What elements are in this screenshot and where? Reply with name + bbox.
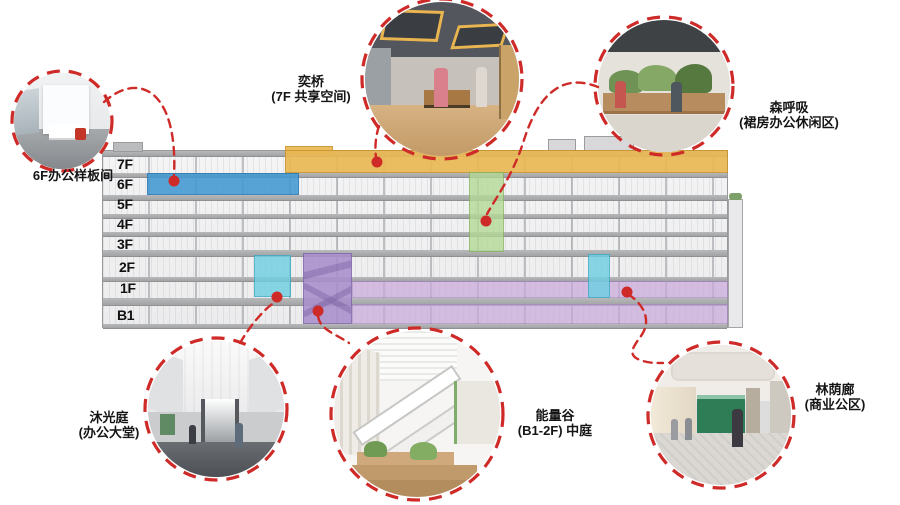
callout-photo-office-showroom	[14, 73, 110, 169]
slab-6f	[103, 195, 727, 201]
arcade-floor	[651, 433, 791, 485]
slab-5f	[103, 214, 727, 219]
callout-label-arcade-line1: 林荫廊	[770, 382, 900, 397]
zone-podium-leisure-highlight	[469, 172, 504, 252]
callout-photo-forest	[598, 20, 730, 152]
roof-parapet	[113, 142, 143, 152]
callout-label-forest-line2: (裙房办公休闲区)	[724, 115, 854, 130]
callout-label-energy: 能量谷 (B1-2F) 中庭	[490, 408, 620, 438]
zone-retail-entry-highlight	[588, 254, 610, 298]
floor-label-3f: 3F	[117, 236, 149, 252]
callout-label-lobby-line2: (办公大堂)	[44, 425, 174, 440]
callout-label-lobby-line1: 沐光庭	[44, 410, 174, 425]
forest-person-left	[615, 81, 626, 109]
escalator-stripe	[303, 259, 352, 281]
yiqiao-person-pink	[434, 68, 448, 107]
callout-label-yiqiao-line2: (7F 共享空间)	[246, 89, 376, 104]
floor-label-4f: 4F	[117, 216, 149, 232]
floor-label-2f: 2F	[119, 259, 151, 275]
callout-label-lobby: 沐光庭 (办公大堂)	[44, 410, 174, 440]
yiqiao-shelving	[499, 45, 519, 119]
callout-photo-yiqiao	[365, 2, 519, 156]
zone-retail-1f-highlight	[352, 281, 728, 298]
arcade-pillar	[746, 388, 760, 436]
energy-plant	[364, 441, 387, 458]
forest-person-right	[671, 82, 683, 112]
slab-4f	[103, 232, 727, 237]
floor-label-5f: 5F	[117, 196, 149, 212]
forest-floor	[598, 115, 730, 152]
slab-3f	[103, 250, 727, 257]
callout-photo-lobby	[148, 341, 284, 477]
slab-b1	[103, 324, 727, 329]
arcade-ceiling-panel	[671, 352, 776, 381]
zone-office-lobby-highlight	[254, 255, 291, 297]
callout-label-energy-line1: 能量谷	[490, 408, 620, 423]
callout-label-yiqiao: 奕桥 (7F 共享空间)	[246, 74, 376, 104]
right-annex	[728, 199, 743, 328]
arcade-person	[671, 419, 678, 440]
floor-label-b1: B1	[117, 307, 149, 323]
callout-label-forest: 森呼吸 (裙房办公休闲区)	[724, 100, 854, 130]
zone-6f-office-showroom-highlight	[147, 173, 299, 195]
yiqiao-skylight	[380, 9, 445, 42]
energy-wood-tier	[344, 465, 477, 480]
callout-label-energy-line2: (B1-2F) 中庭	[490, 423, 620, 438]
arcade-person	[685, 418, 692, 440]
lobby-person	[189, 425, 196, 444]
callout-photo-arcade	[651, 345, 791, 485]
building-section-diagram: 7F 6F 5F 4F 3F 2F 1F B1	[0, 0, 900, 505]
arcade-person-dark	[732, 409, 743, 447]
callout-photo-energy-valley	[334, 331, 500, 497]
energy-plant	[410, 442, 437, 460]
lobby-floor	[148, 442, 284, 477]
lobby-light-portal	[201, 399, 239, 441]
callout-label-arcade-line2: (商业公区)	[770, 397, 900, 412]
zone-atrium-highlight	[303, 253, 352, 324]
callout-label-yiqiao-line1: 奕桥	[246, 74, 376, 89]
energy-wood-tier	[334, 480, 500, 497]
lobby-person	[235, 423, 243, 447]
callout-label-showroom: 6F办公样板间	[8, 168, 138, 183]
zone-retail-b1-highlight	[352, 304, 728, 324]
callout-label-arcade: 林荫廊 (商业公区)	[770, 382, 900, 412]
yiqiao-wood-floor	[365, 105, 519, 156]
showroom-red-chair	[75, 128, 86, 140]
forest-ceiling	[598, 20, 730, 52]
callout-label-forest-line1: 森呼吸	[724, 100, 854, 115]
yiqiao-person-white	[476, 67, 487, 107]
showroom-window	[14, 89, 39, 137]
floor-label-1f: 1F	[120, 280, 152, 296]
roof-planting	[729, 193, 742, 200]
callout-label-showroom-text: 6F办公样板间	[33, 168, 113, 183]
